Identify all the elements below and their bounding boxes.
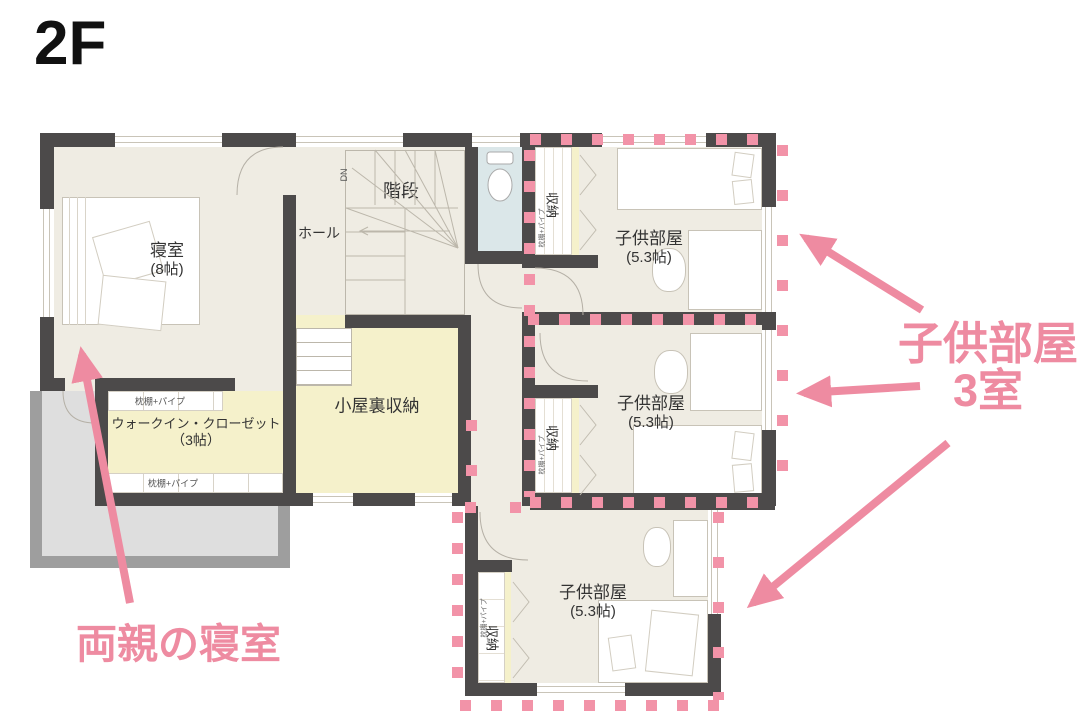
balcony-floor: [42, 391, 95, 556]
kids3-chair: [643, 527, 671, 567]
window: [472, 133, 520, 147]
kids3-desk: [673, 520, 708, 597]
wic-shelf-bottom-label: 枕棚+パイプ: [148, 477, 198, 490]
kids3-name: 子供部屋: [559, 583, 627, 603]
page-title: 2F: [34, 8, 106, 79]
wall-segment: [465, 683, 537, 696]
kids1-closet-shelf-label: 枕棚+パイプ: [537, 208, 547, 247]
wall-segment: [762, 147, 776, 207]
pink-dash-outline: [460, 700, 730, 711]
kids1-closet-shelf-strip: [572, 147, 579, 255]
kids3-duvet: [645, 610, 699, 677]
window: [115, 133, 222, 147]
kids1-pillow: [731, 152, 754, 179]
window: [40, 209, 54, 317]
window: [537, 683, 625, 696]
balcony-rail: [30, 556, 290, 568]
balcony-rail: [278, 506, 290, 568]
wall-segment: [95, 378, 235, 391]
window: [296, 133, 403, 147]
kids2-closet-shelf-label: 枕棚+パイプ: [537, 435, 547, 474]
arrow-to-kids-room-1: [806, 238, 922, 310]
stairs-dn-marker: DN: [339, 169, 349, 182]
wall-segment: [283, 195, 296, 506]
kids3-size: (5.3帖): [559, 603, 627, 621]
pink-dash-outline: [530, 497, 775, 508]
room-label-kids-3: 子供部屋 (5.3帖): [559, 583, 627, 621]
wall-segment: [465, 506, 478, 696]
wall-segment: [345, 315, 471, 328]
wic-name: ウォークイン・クローゼット: [111, 416, 280, 432]
pink-dash-outline: [777, 145, 788, 505]
pink-dash-outline: [530, 134, 775, 145]
window: [762, 330, 776, 430]
wall-segment: [403, 133, 472, 147]
stairs-area: [345, 150, 465, 315]
kids2-pillow: [732, 463, 754, 493]
bedroom-name: 寝室: [150, 241, 184, 261]
wall-segment: [95, 378, 108, 506]
room-label-wic: ウォークイン・クローゼット （3帖）: [111, 416, 280, 448]
room-label-attic: 小屋裏収納: [335, 392, 420, 417]
wc-floor: [478, 147, 522, 251]
wall-segment: [465, 147, 478, 264]
wall-segment: [95, 493, 296, 506]
wall-segment: [222, 133, 296, 147]
kids2-closet-shelf-strip: [572, 398, 579, 493]
bedroom-bed-headboard: [62, 197, 88, 325]
kids2-desk: [690, 333, 762, 411]
kids2-chair: [654, 350, 688, 394]
bedroom-duvet: [98, 275, 167, 331]
window: [415, 493, 452, 506]
pink-dash-outline: [466, 420, 477, 508]
wall-segment: [40, 133, 115, 147]
balcony-rail: [30, 391, 42, 568]
bedroom-size: (8帖): [150, 261, 184, 279]
wall-segment: [40, 378, 65, 391]
pink-dash-outline: [465, 502, 525, 513]
kids3-closet-shelf-label: 枕棚+パイプ: [479, 598, 489, 637]
room-label-hall: ホール: [298, 223, 340, 243]
kids1-pillow: [732, 179, 754, 205]
window: [313, 493, 353, 506]
kids3-closet-shelf-strip: [505, 572, 511, 683]
wic-size: （3帖）: [111, 431, 280, 448]
pink-dash-outline: [452, 512, 463, 697]
kids1-name: 子供部屋: [615, 229, 683, 249]
annotation-parents-bedroom: 両親の寝室: [76, 610, 281, 670]
kids2-size: (5.3帖): [617, 414, 685, 432]
kids2-name: 子供部屋: [617, 394, 685, 414]
kids2-pillow: [731, 431, 754, 461]
room-label-kids-1: 子供部屋 (5.3帖): [615, 229, 683, 267]
kids1-size: (5.3帖): [615, 249, 683, 267]
pink-dash-outline: [528, 314, 775, 325]
balcony-floor: [95, 506, 278, 556]
pink-dash-outline: [713, 512, 724, 700]
wic-shelf-top-label: 枕棚+パイプ: [135, 395, 185, 408]
room-label-stairs: 階段: [383, 177, 419, 203]
annotation-kids-rooms: 子供部屋 3室: [896, 320, 1078, 415]
room-label-bedroom: 寝室 (8帖): [150, 241, 184, 279]
floor-plan: 2F 寝室 (8帖) ホール 階段 DN WC 小屋裏収納 ウォークイン・クロー…: [0, 0, 1078, 720]
kids1-desk: [688, 230, 762, 310]
wall-segment: [465, 560, 512, 572]
kids3-pillow: [608, 634, 636, 671]
room-label-kids-2: 子供部屋 (5.3帖): [617, 394, 685, 432]
attic-steps: [296, 328, 352, 386]
annotation-kids-line1: 子供部屋: [896, 320, 1078, 367]
wall-segment: [40, 147, 54, 209]
wall-segment: [625, 683, 720, 696]
window: [762, 207, 776, 312]
annotation-kids-line2: 3室: [896, 367, 1078, 414]
room-label-wc: WC: [490, 180, 512, 195]
